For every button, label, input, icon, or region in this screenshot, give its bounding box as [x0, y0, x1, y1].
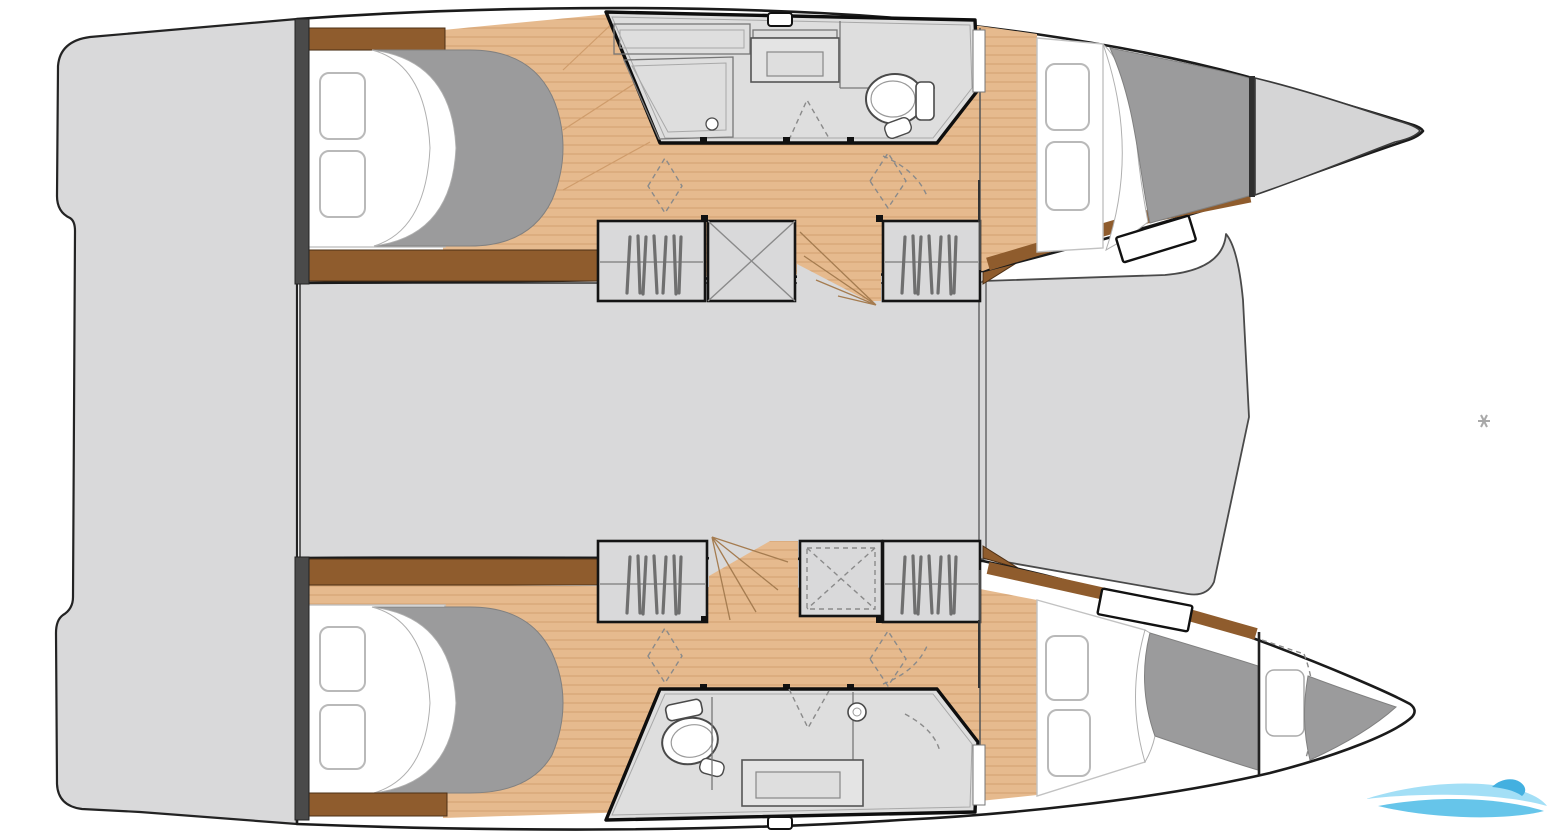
companionway-stairs — [709, 537, 798, 622]
deck-hatch — [768, 817, 792, 829]
pillow — [1266, 670, 1304, 736]
transom-divider-port — [295, 19, 309, 284]
collision-bulkhead — [1249, 76, 1255, 197]
door-post — [876, 616, 883, 623]
stern-platform — [56, 19, 297, 824]
starboard-hull — [297, 537, 1415, 830]
starboard-bathroom — [606, 689, 978, 829]
pillow — [1046, 142, 1089, 210]
port-hull — [297, 8, 1423, 305]
door-post — [701, 616, 708, 623]
small-cross-artifact-icon — [1478, 415, 1490, 427]
door-post — [847, 137, 854, 144]
round-sink — [848, 703, 866, 721]
wardrobe — [598, 541, 707, 622]
door-post — [701, 215, 708, 222]
sink-basin — [756, 772, 840, 798]
foredeck-area — [983, 234, 1249, 595]
companionway-stairs — [797, 221, 881, 305]
floor-plan-canvas — [0, 0, 1560, 831]
toilet-cistern — [916, 82, 934, 120]
stern-platform-shape — [56, 19, 297, 824]
pillow — [1046, 636, 1088, 700]
sink-basin — [767, 52, 823, 76]
wardrobe — [598, 221, 705, 301]
pillow — [1046, 64, 1089, 130]
pillow — [320, 73, 365, 139]
saloon-forward-wall — [979, 282, 986, 559]
side-locker — [973, 30, 985, 92]
door-post — [700, 137, 707, 144]
berth-side-trim — [307, 559, 598, 585]
headboard-shelf — [307, 793, 447, 816]
door-post — [783, 137, 790, 144]
door-post — [876, 215, 883, 222]
transom-divider-starboard — [295, 557, 309, 820]
deck-hatch — [768, 13, 792, 26]
watermark-wave-logo-icon — [1366, 779, 1547, 817]
pillow — [320, 627, 365, 691]
pillow — [320, 151, 365, 217]
port-bathroom — [606, 12, 978, 143]
pillow — [320, 705, 365, 769]
pillow — [1048, 710, 1090, 776]
shower-drain — [706, 118, 718, 130]
berth-side-trim — [307, 250, 598, 281]
catamaran-floor-plan — [0, 0, 1560, 831]
bow-locker — [1255, 78, 1420, 195]
saloon-area — [300, 283, 983, 559]
headboard-shelf — [307, 28, 445, 50]
side-locker — [973, 745, 985, 805]
